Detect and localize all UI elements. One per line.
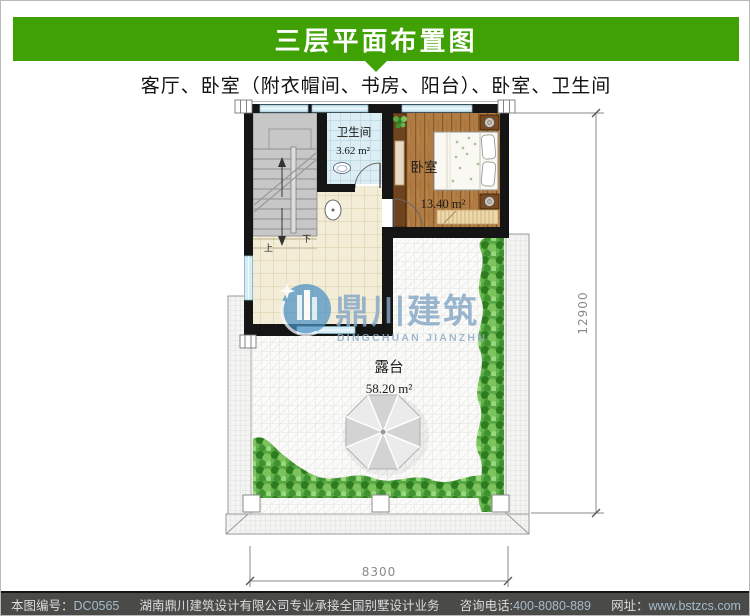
footer-phone: 咨询电话:400-8080-889 [460,595,591,614]
watermark-name: 鼎川建筑 [335,293,479,331]
header-banner: 三层平面布置图 [13,17,739,61]
bathroom-area: 3.62 m² [336,145,371,157]
bathroom-label: 卫生间 [337,125,372,139]
plan-number-label: 本图编号： [11,599,74,613]
umbrella-icon [343,394,429,476]
dimension-height-value: 12900 [576,291,590,334]
watermark-latin: DINGCHUAN JIANZHU [337,332,487,344]
bedroom-label: 卧室 [411,159,438,175]
website-value: www.bstzcs.com [649,599,741,613]
phone-label: 咨询电话: [460,599,513,613]
website-label: 网址： [611,599,649,613]
footer-website: 网址：www.bstzcs.com [611,595,741,614]
footer-plan-number: 本图编号：DC0565 [11,595,119,614]
terrace-label: 露台 [375,359,404,376]
footer-company: 湖南鼎川建筑设计有限公司专业承接全国别墅设计业务 [140,595,440,614]
phone-value: 400-8080-889 [513,599,591,613]
dimension-width-value: 8300 [362,565,397,579]
bed [434,132,498,190]
subtitle: 客厅、卧室（附衣帽间、书房、阳台）、卧室、卫生间 [1,71,750,98]
dimension-width: 8300 [246,546,512,587]
page-title: 三层平面布置图 [274,21,477,58]
bedroom-area: 13.40 m² [421,197,466,211]
stairs-down-label: 下 [302,234,311,244]
plan-number-value: DC0565 [74,599,120,613]
terrace-area: 58.20 m² [366,381,413,396]
footer-bar: 本图编号：DC0565 湖南鼎川建筑设计有限公司专业承接全国别墅设计业务 咨询电… [1,591,750,615]
stairs: 上 下 [253,113,317,253]
page: 上 下 [0,0,750,616]
rug [437,210,498,224]
stairs-up-label: 上 [264,243,273,253]
